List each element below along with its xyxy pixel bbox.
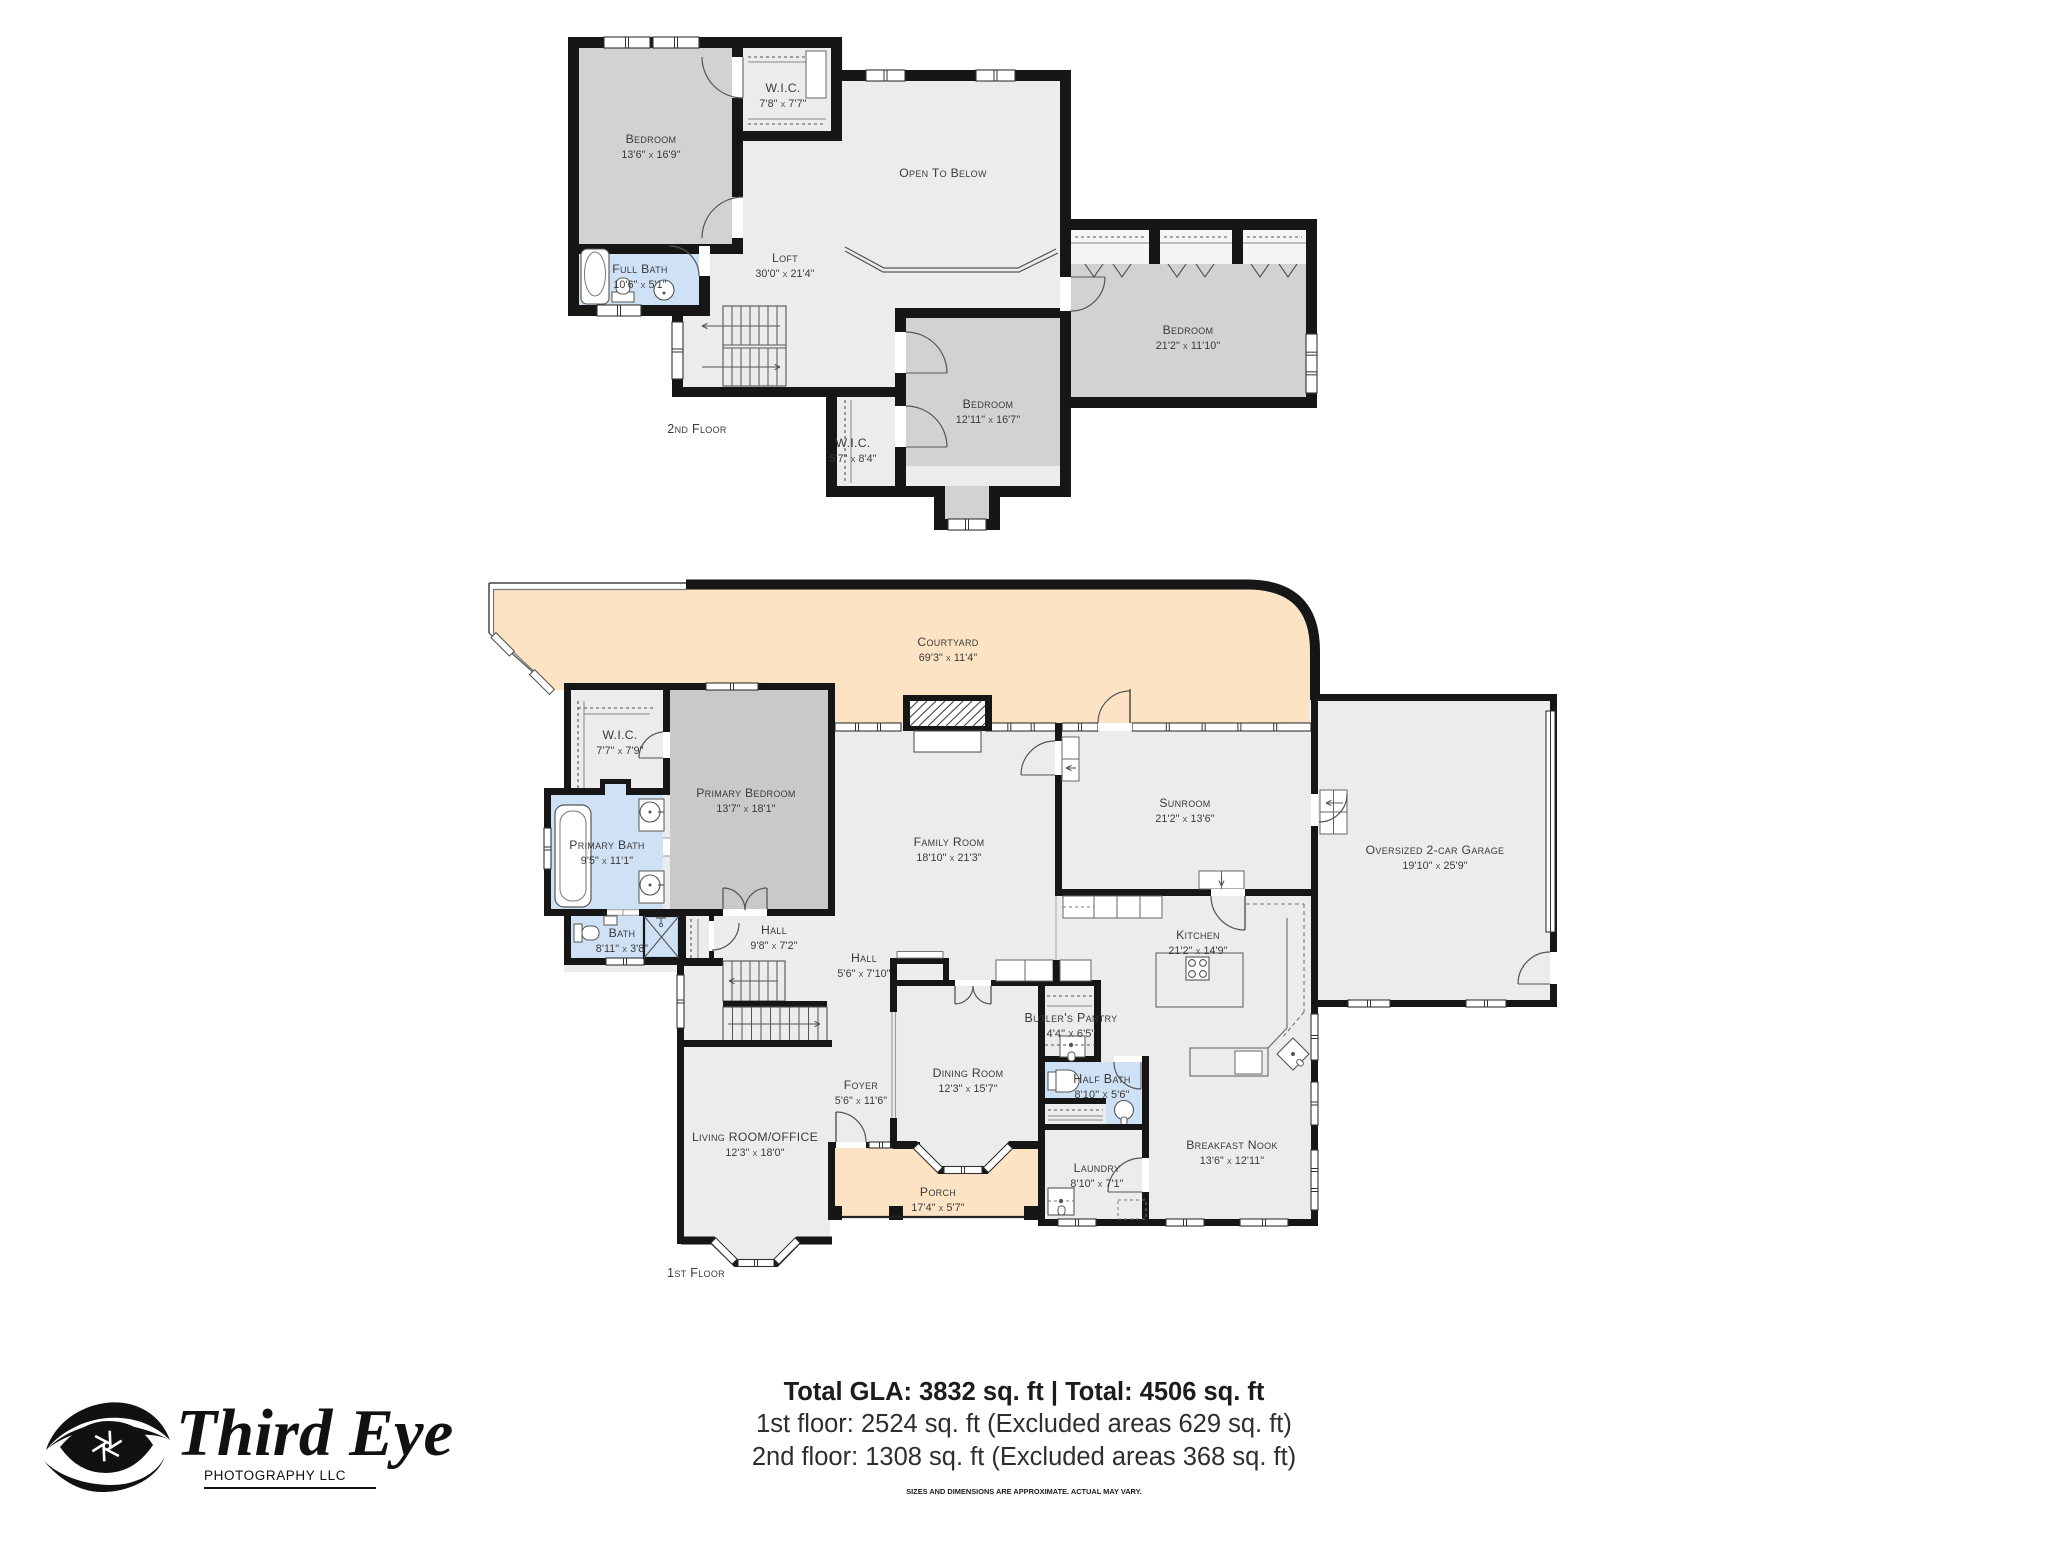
svg-text:18'10" x 21'3": 18'10" x 21'3" (916, 852, 981, 864)
svg-text:W.I.C.: W.I.C. (766, 81, 801, 95)
svg-text:W.I.C.: W.I.C. (603, 728, 638, 742)
svg-text:9'5" x 11'1": 9'5" x 11'1" (581, 855, 634, 867)
svg-text:2nd floor: 1308 sq. ft (Exclud: 2nd floor: 1308 sq. ft (Excluded areas 3… (752, 1443, 1296, 1471)
svg-text:21'2" x 13'6": 21'2" x 13'6" (1155, 813, 1214, 825)
svg-text:Bath: Bath (609, 926, 636, 940)
svg-text:7'8" x 7'7": 7'8" x 7'7" (759, 98, 806, 110)
svg-text:7'7" x 7'9": 7'7" x 7'9" (596, 745, 643, 757)
svg-text:1st floor: 2524 sq. ft (Exclud: 1st floor: 2524 sq. ft (Excluded areas 6… (756, 1410, 1292, 1438)
svg-text:13'6" x 12'11": 13'6" x 12'11" (1200, 1155, 1265, 1167)
svg-text:12'3" x 15'7": 12'3" x 15'7" (938, 1083, 997, 1095)
svg-text:5'7" x 8'4": 5'7" x 8'4" (829, 453, 876, 465)
svg-text:Foyer: Foyer (844, 1078, 879, 1092)
svg-text:8'10" x 7'1": 8'10" x 7'1" (1070, 1178, 1123, 1190)
svg-text:Third Eye: Third Eye (176, 1396, 453, 1470)
svg-text:8'11" x 3'8": 8'11" x 3'8" (596, 943, 649, 955)
svg-text:12'3" x 18'0": 12'3" x 18'0" (725, 1147, 784, 1159)
svg-text:8'10" x 5'6": 8'10" x 5'6" (1074, 1089, 1129, 1101)
svg-text:21'2" x 14'9": 21'2" x 14'9" (1168, 945, 1227, 957)
svg-text:10'6" x 5'1": 10'6" x 5'1" (613, 279, 666, 291)
svg-text:1st Floor: 1st Floor (667, 1266, 725, 1280)
svg-text:21'2" x 11'10": 21'2" x 11'10" (1156, 340, 1221, 352)
svg-text:Half Bath: Half Bath (1073, 1072, 1130, 1086)
svg-text:Primary Bath: Primary Bath (569, 838, 644, 852)
svg-text:Total GLA: 3832 sq. ft | Total: Total GLA: 3832 sq. ft | Total: 4506 sq.… (784, 1378, 1265, 1406)
svg-text:PHOTOGRAPHY LLC: PHOTOGRAPHY LLC (204, 1468, 346, 1483)
svg-text:Full Bath: Full Bath (612, 262, 668, 276)
svg-text:Hall: Hall (761, 923, 787, 937)
svg-text:12'11" x 16'7": 12'11" x 16'7" (956, 414, 1021, 426)
svg-text:Open To Below: Open To Below (899, 166, 987, 180)
svg-text:69'3" x 11'4": 69'3" x 11'4" (919, 652, 978, 664)
svg-text:SIZES AND DIMENSIONS ARE APPRO: SIZES AND DIMENSIONS ARE APPROXIMATE. AC… (906, 1487, 1142, 1496)
svg-text:9'8" x 7'2": 9'8" x 7'2" (750, 940, 797, 952)
svg-text:Kitchen: Kitchen (1176, 928, 1220, 942)
svg-text:5'6" x 11'6": 5'6" x 11'6" (835, 1095, 888, 1107)
svg-text:19'10" x 25'9": 19'10" x 25'9" (1402, 860, 1467, 872)
svg-text:30'0" x 21'4": 30'0" x 21'4" (755, 268, 814, 280)
svg-text:Loft: Loft (772, 251, 798, 265)
svg-text:4'4" x 6'5": 4'4" x 6'5" (1046, 1028, 1095, 1040)
svg-text:Laundry: Laundry (1074, 1161, 1121, 1175)
svg-text:Oversized 2-car Garage: Oversized 2-car Garage (1366, 843, 1505, 857)
svg-text:Hall: Hall (851, 951, 877, 965)
svg-text:Porch: Porch (920, 1185, 956, 1199)
svg-text:Sunroom: Sunroom (1159, 796, 1210, 810)
svg-text:W.I.C.: W.I.C. (836, 436, 871, 450)
svg-text:17'4" x 5'7": 17'4" x 5'7" (911, 1202, 964, 1214)
svg-text:Bedroom: Bedroom (1163, 323, 1214, 337)
svg-text:Bedroom: Bedroom (626, 132, 677, 146)
svg-text:Courtyard: Courtyard (917, 635, 978, 649)
svg-text:5'6" x 7'10": 5'6" x 7'10" (837, 968, 890, 980)
svg-text:Family Room: Family Room (914, 835, 985, 849)
svg-text:Breakfast Nook: Breakfast Nook (1186, 1138, 1278, 1152)
svg-text:Dining Room: Dining Room (933, 1066, 1004, 1080)
svg-text:Living ROOM/OFFICE: Living ROOM/OFFICE (692, 1130, 818, 1144)
svg-text:Bedroom: Bedroom (963, 397, 1014, 411)
svg-text:Primary Bedroom: Primary Bedroom (696, 786, 795, 800)
svg-text:13'7" x 18'1": 13'7" x 18'1" (716, 803, 775, 815)
svg-text:Butler's Pantry: Butler's Pantry (1025, 1011, 1118, 1025)
svg-text:13'6" x 16'9": 13'6" x 16'9" (621, 149, 680, 161)
svg-text:2nd Floor: 2nd Floor (667, 422, 727, 436)
